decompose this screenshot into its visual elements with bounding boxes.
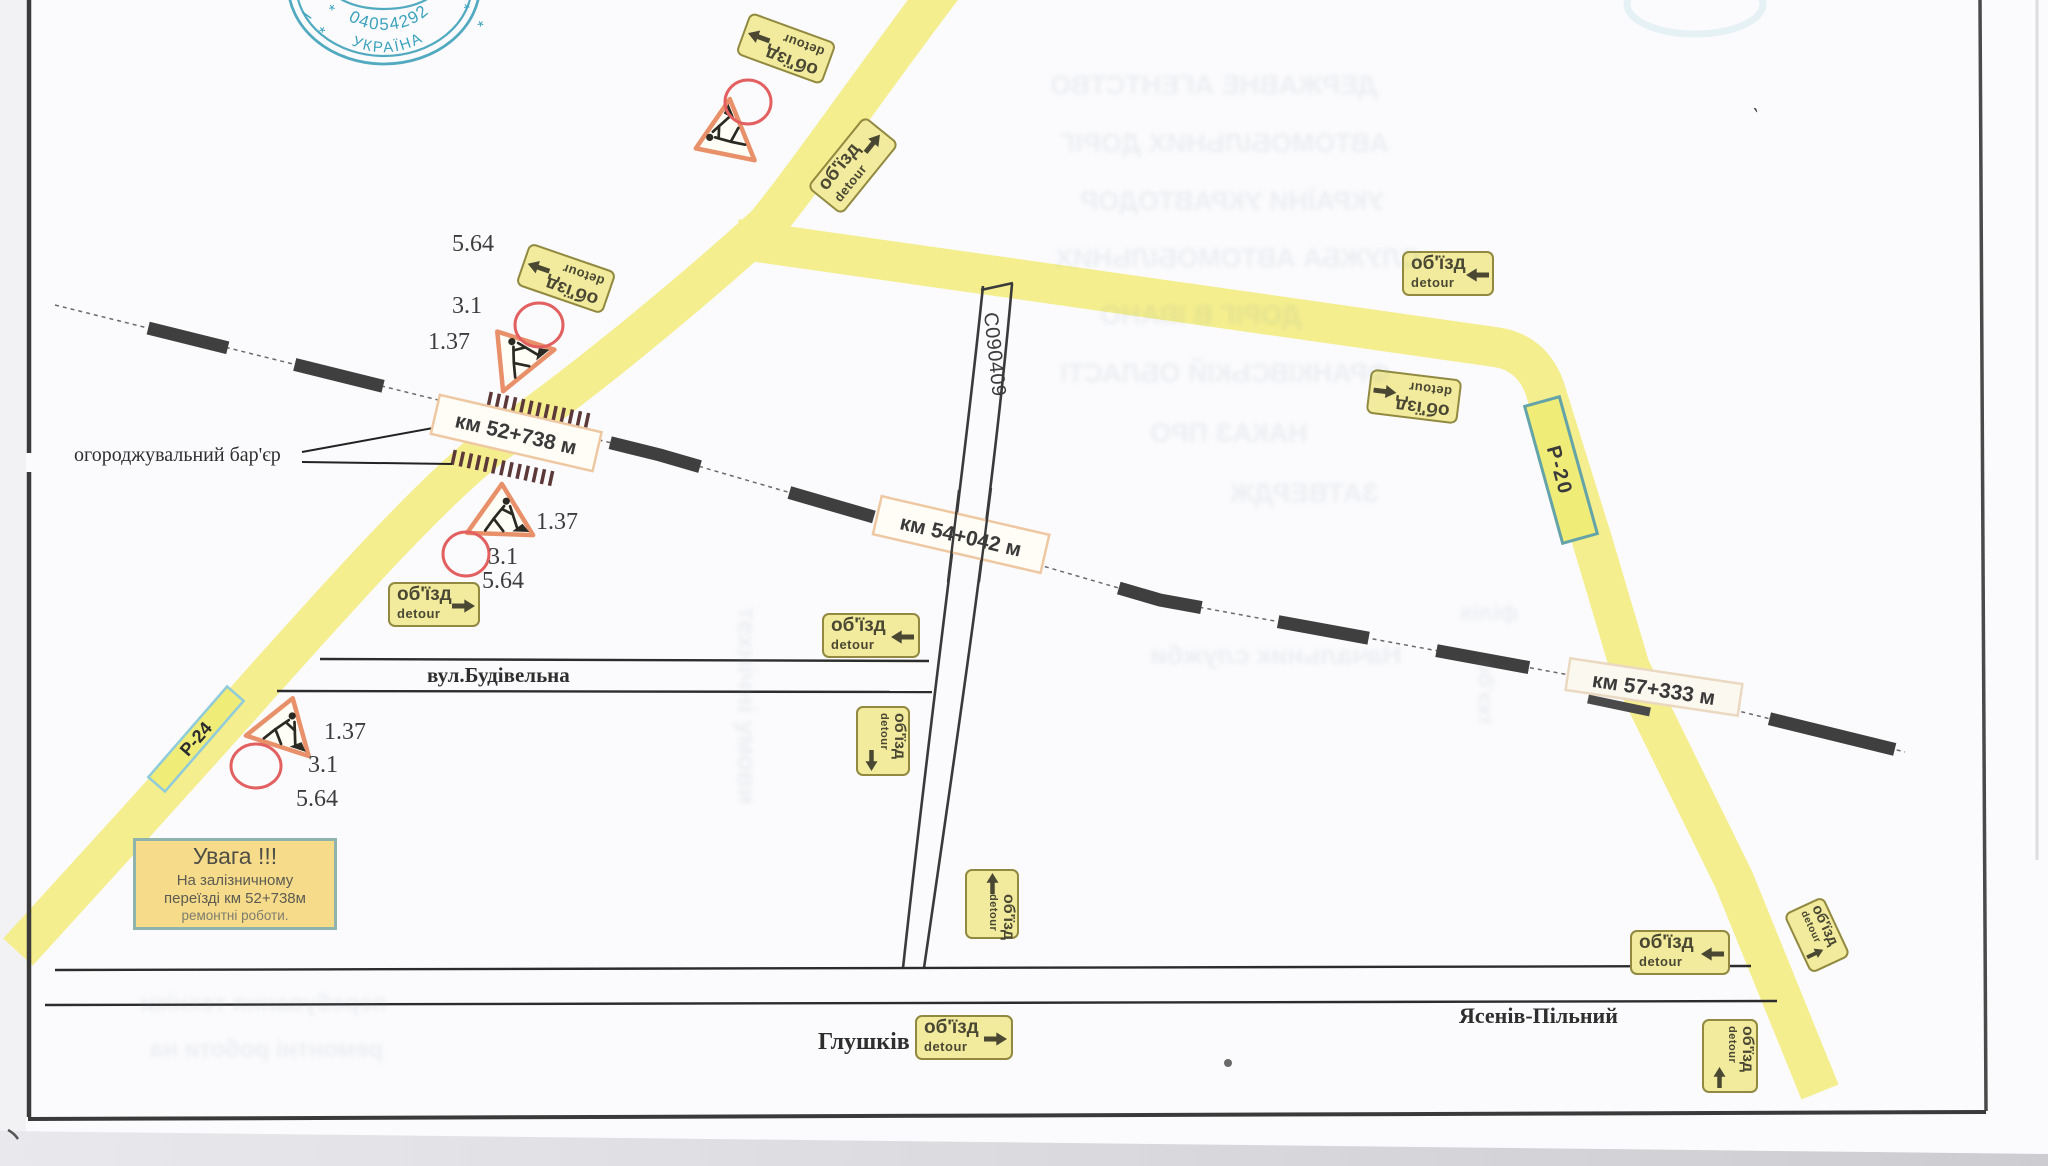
svg-text:*: * [470, 18, 486, 35]
svg-text:*: * [327, 2, 342, 20]
svg-text:`: ` [1746, 103, 1761, 129]
svg-text:С090409: С090409 [979, 311, 1010, 398]
svg-text:*: * [458, 1, 472, 19]
